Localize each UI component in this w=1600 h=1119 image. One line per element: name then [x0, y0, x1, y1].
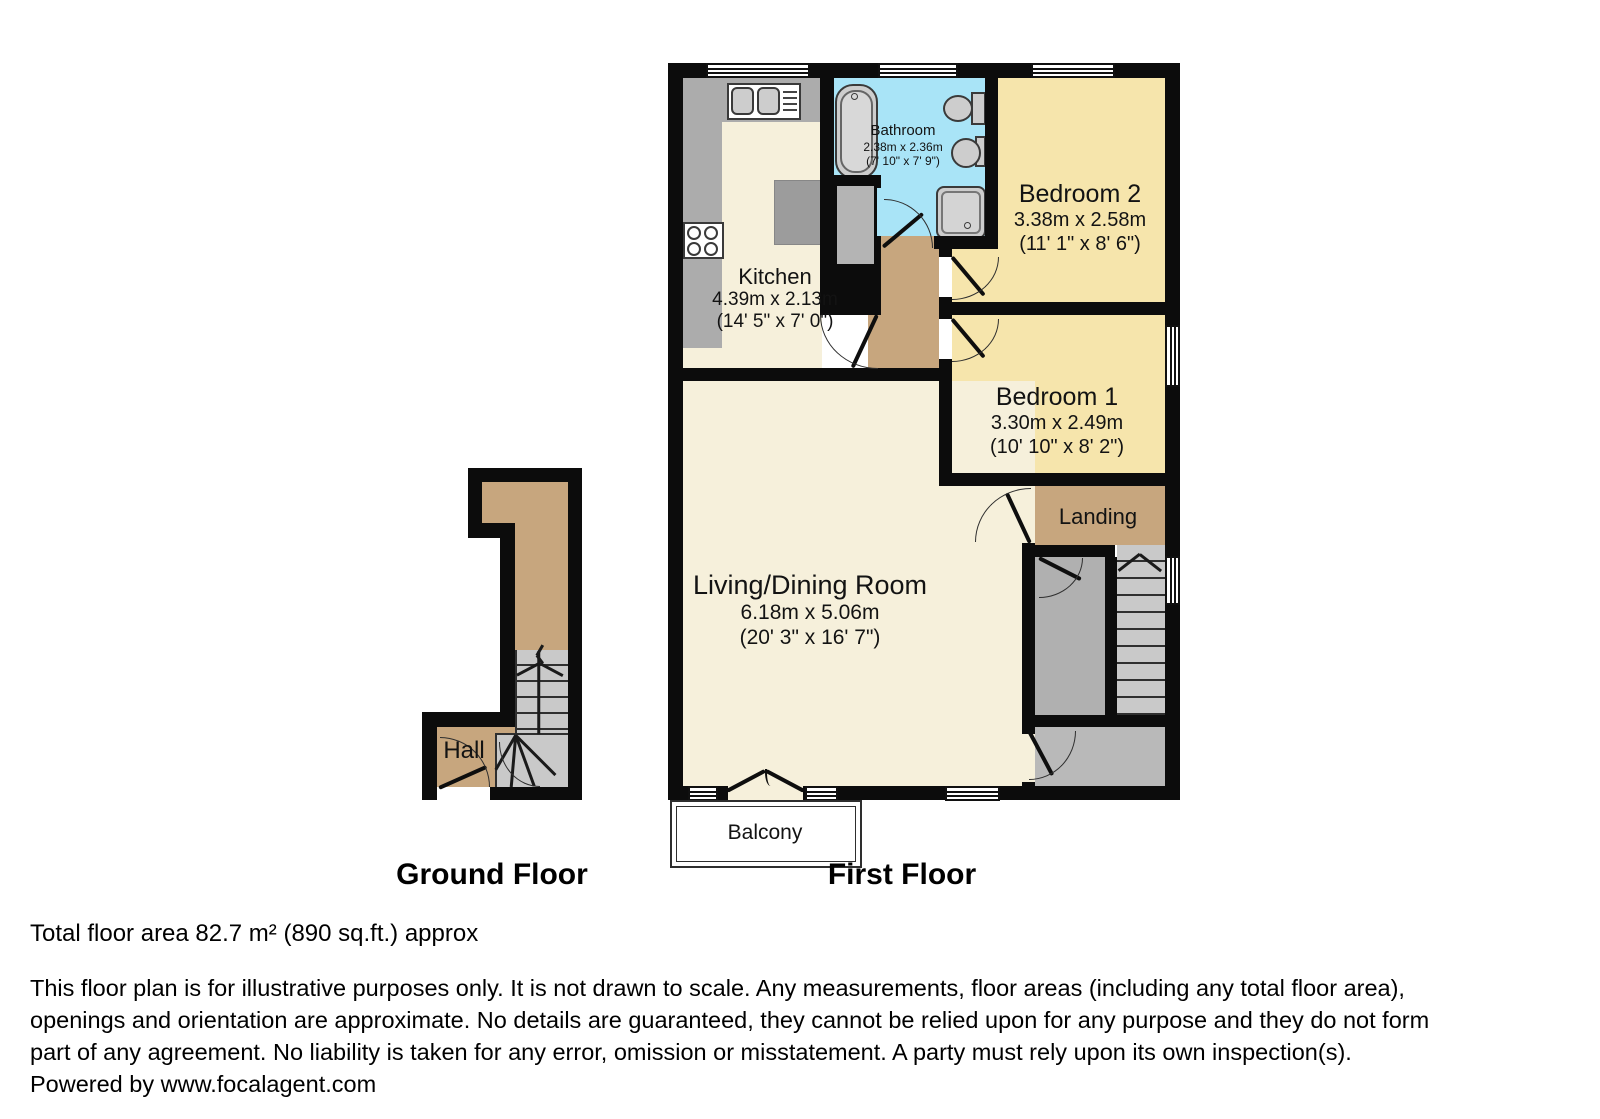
sink-drainer-line: [783, 103, 797, 105]
disclaimer-line: part of any agreement. No liability is t…: [30, 1036, 1530, 1068]
hob-ring: [704, 242, 718, 256]
wall: [1165, 63, 1180, 800]
first-floor-title: First Floor: [787, 858, 1017, 892]
window: [688, 786, 718, 801]
window: [706, 63, 810, 78]
wall: [1022, 782, 1035, 788]
room-dimensions-imperial: (10' 10" x 8' 2"): [962, 435, 1152, 459]
disclaimer-line: openings and orientation are approximate…: [30, 1004, 1530, 1036]
hob-ring: [687, 226, 701, 240]
sink-drainer-line: [783, 97, 797, 99]
sink-basin: [757, 87, 780, 115]
ground-corridor-floor: [482, 482, 568, 523]
disclaimer-line powered-by: Powered by www.focalagent.com: [30, 1068, 1530, 1100]
total-floor-area: Total floor area 82.7 m² (890 sq.ft.) ap…: [30, 920, 478, 948]
room-name: Landing: [1033, 504, 1163, 529]
sink-basin: [731, 87, 754, 115]
room-dimensions-imperial: (20' 3" x 16' 7"): [635, 625, 985, 650]
room-dimensions-imperial: (7' 10" x 7' 9"): [843, 154, 963, 168]
sink-drainer-line: [783, 91, 797, 93]
bathtub-drain: [851, 93, 858, 100]
room-dimensions-metric: 3.38m x 2.58m: [985, 208, 1175, 232]
wall: [939, 473, 1165, 486]
disclaimer-line: This floor plan is for illustrative purp…: [30, 972, 1530, 1004]
room-name: Kitchen: [690, 264, 860, 289]
toilet-cistern: [971, 92, 986, 125]
room-name: Bedroom 2: [985, 180, 1175, 208]
wall: [668, 63, 683, 800]
balcony-door-opening: [728, 786, 803, 800]
room-name: Balcony: [698, 820, 832, 845]
wall: [1105, 557, 1117, 715]
wall: [500, 538, 515, 727]
landing-label: Landing: [1033, 504, 1163, 529]
bedroom1-label: Bedroom 1 3.30m x 2.49m (10' 10" x 8' 2"…: [962, 383, 1152, 459]
window: [1165, 556, 1180, 605]
wall: [468, 523, 515, 538]
wall: [820, 78, 834, 267]
wall: [668, 368, 952, 381]
room-dimensions-metric: 6.18m x 5.06m: [635, 600, 985, 625]
sink-drainer-line: [783, 109, 797, 111]
hob-ring: [704, 226, 718, 240]
wall: [934, 236, 985, 249]
room-dimensions-metric: 4.39m x 2.13m: [690, 289, 860, 311]
window: [1031, 63, 1115, 78]
wall: [939, 359, 952, 473]
front-door-opening: [437, 787, 490, 800]
room-name: Living/Dining Room: [635, 570, 985, 600]
room-dimensions-imperial: (11' 1" x 8' 6"): [985, 232, 1175, 256]
room-dimensions-imperial: (14' 5" x 7' 0"): [690, 311, 860, 333]
wall: [1035, 545, 1115, 557]
window: [1165, 325, 1180, 387]
first-stairs: [1117, 545, 1165, 718]
kitchen-appliance: [774, 180, 822, 245]
window: [945, 786, 1000, 801]
hall-label: Hall: [428, 738, 500, 763]
bedroom2-label: Bedroom 2 3.38m x 2.58m (11' 1" x 8' 6"): [985, 180, 1175, 256]
wall: [1022, 543, 1035, 715]
room-name: Hall: [428, 738, 500, 763]
balcony-label: Balcony: [698, 820, 832, 845]
hallway-floor: [881, 236, 939, 368]
room-dimensions-metric: 3.30m x 2.49m: [962, 411, 1152, 435]
bathroom-label: Bathroom 2.38m x 2.36m (7' 10" x 7' 9"): [843, 122, 963, 168]
window: [805, 786, 838, 801]
window: [878, 63, 958, 78]
wall: [468, 468, 582, 482]
floorplan-page: Hall Ground Floor: [0, 0, 1600, 1119]
wall: [939, 302, 1165, 315]
ground-corridor-floor: [515, 523, 568, 650]
ground-floor-title: Ground Floor: [377, 858, 607, 892]
shower-drain: [964, 222, 971, 229]
wall: [568, 468, 582, 800]
room-dimensions-metric: 2.38m x 2.36m: [843, 140, 963, 154]
wall: [1022, 715, 1165, 727]
shower-tray-inner: [941, 191, 981, 234]
room-name: Bathroom: [843, 122, 963, 140]
toilet-bowl: [943, 95, 973, 122]
hob-ring: [687, 242, 701, 256]
wall: [939, 315, 952, 319]
cupboard: [834, 183, 877, 267]
wall: [939, 249, 952, 257]
kitchen-label: Kitchen 4.39m x 2.13m (14' 5" x 7' 0"): [690, 264, 860, 333]
living-label: Living/Dining Room 6.18m x 5.06m (20' 3"…: [635, 570, 985, 650]
disclaimer: This floor plan is for illustrative purp…: [30, 972, 1530, 1100]
room-name: Bedroom 1: [962, 383, 1152, 411]
